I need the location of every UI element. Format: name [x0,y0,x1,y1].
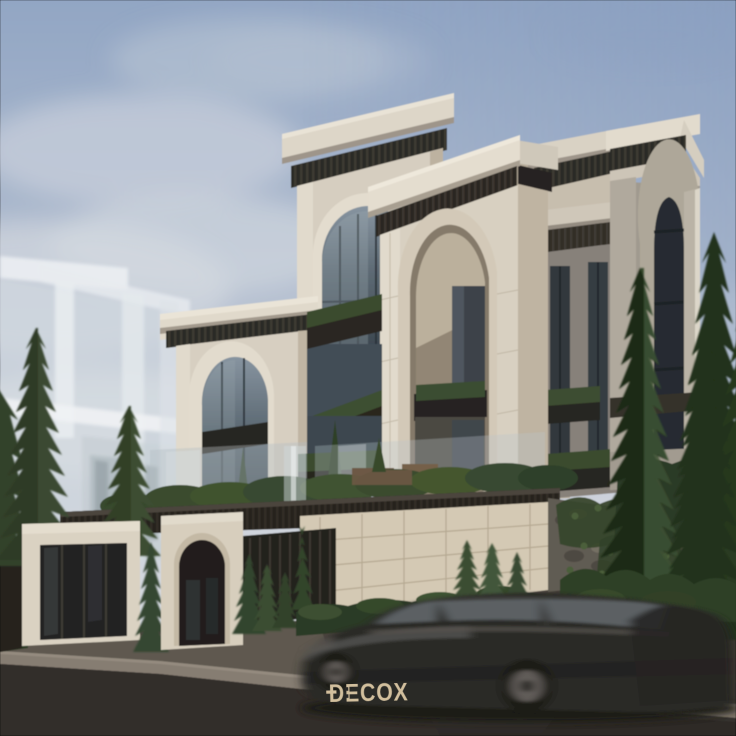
svg-text:DECOX: DECOX [329,678,409,708]
